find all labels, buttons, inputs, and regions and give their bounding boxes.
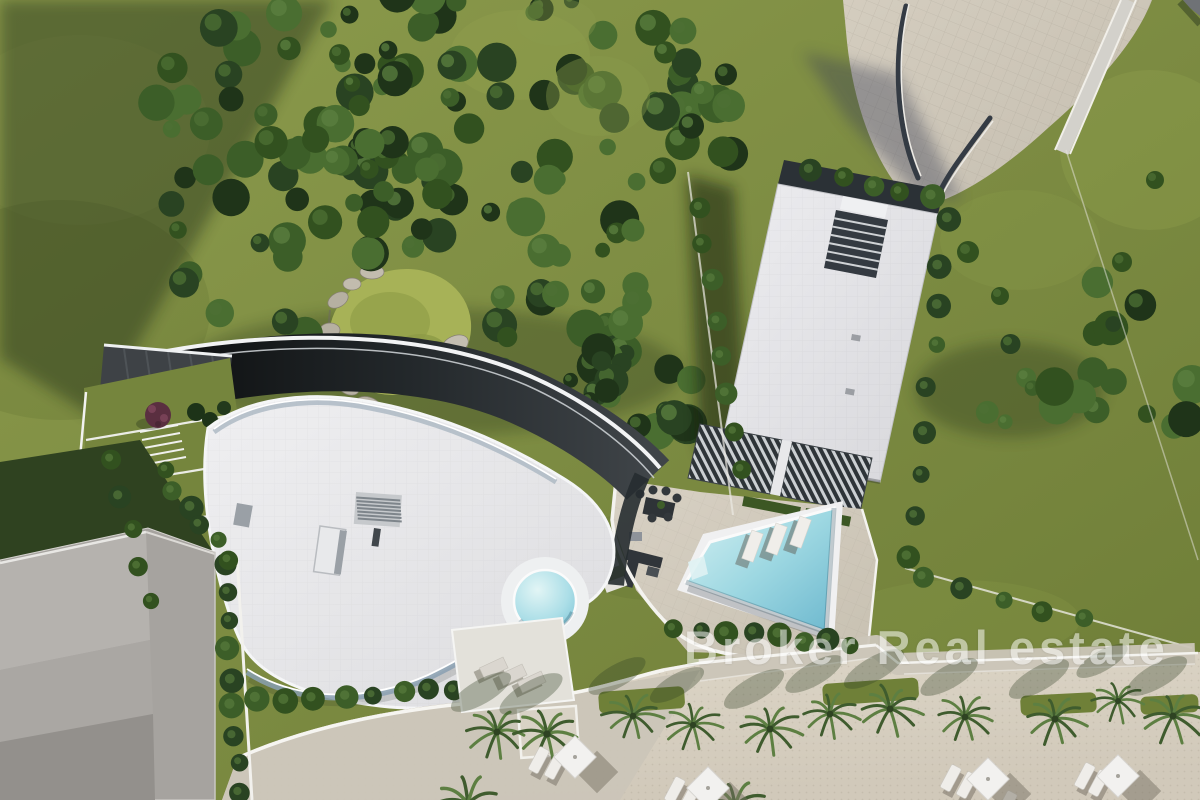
tree-highlight [979,404,989,414]
tree [991,287,1009,305]
tree-highlight [362,162,371,171]
tree-highlight [960,244,970,254]
tree [320,21,337,38]
hedge-highlight [234,757,241,764]
tree [345,194,363,212]
tree-highlight [411,137,427,153]
render-canvas [0,0,1200,800]
tree [159,191,185,217]
hedge-highlight [340,690,349,699]
hedge-highlight [224,699,234,709]
hedge-highlight [838,171,846,179]
hedge-highlight [720,387,729,396]
hedge-highlight [113,490,122,499]
hedge-highlight [696,625,702,631]
tree-highlight [686,106,692,112]
tree [511,161,533,183]
hedge-highlight [999,595,1006,602]
tree-highlight [381,43,389,51]
tree-highlight [1115,255,1124,264]
tree-highlight [1177,370,1194,387]
hedge-highlight [955,582,964,591]
tree [411,218,433,240]
hedge-highlight [728,426,736,434]
hedge-highlight [128,523,135,530]
tree-highlight [682,117,693,128]
tree-highlight [257,106,267,116]
tree-highlight [584,282,595,293]
hedge-highlight [367,690,374,697]
tree [373,181,394,202]
tree [302,126,329,153]
tree-highlight [532,238,547,253]
tree-highlight [346,78,353,85]
tree-highlight [494,288,505,299]
hedge-highlight [223,554,231,562]
tree-highlight [273,227,290,244]
tree-highlight [694,84,704,94]
hedge-highlight [398,685,406,693]
tree [534,165,564,195]
hedge-highlight [773,628,783,638]
tree-highlight [161,57,175,71]
tree [708,136,739,167]
tree-highlight [661,405,677,421]
tree [454,113,484,143]
hedge-highlight [926,190,936,200]
tree [172,85,202,115]
tree-highlight [321,110,338,127]
tree-highlight [718,66,728,76]
hedge-highlight [227,730,235,738]
tree-highlight [405,238,415,248]
hedge-highlight [932,299,942,309]
tree [621,219,644,242]
tree-highlight [165,122,173,130]
tree [354,53,375,74]
hedge-highlight [712,316,720,324]
tree-highlight [1129,293,1143,307]
tree [174,167,196,189]
hedge-highlight [422,683,430,691]
tree-highlight [259,130,274,145]
hedge-highlight [668,623,675,630]
tree [193,154,224,185]
hedge-highlight [706,273,715,282]
tree-highlight [1019,370,1028,379]
tree-highlight [343,8,351,16]
tree-highlight [565,375,572,382]
hedge-highlight [821,633,830,642]
tree [415,158,439,182]
tree-highlight [657,44,667,54]
tree-highlight [1027,382,1034,389]
hedge-highlight [894,186,902,194]
hedge-highlight [845,640,852,647]
tree-highlight [1000,416,1007,423]
tree [349,95,370,116]
tree-highlight [673,21,685,33]
tree [1035,367,1074,406]
tree-highlight [441,54,454,67]
hedge-highlight [233,787,241,795]
tree-highlight [218,64,230,76]
hedge-highlight [719,626,729,636]
hedge-highlight [224,615,231,622]
tree [477,43,516,82]
tree-highlight [332,47,341,56]
tree-highlight [717,94,732,109]
hedge-highlight [1036,606,1044,614]
tree [1146,171,1164,189]
tree-highlight [609,225,618,234]
hedge-highlight [868,180,876,188]
tree [592,351,612,371]
tree [219,87,244,112]
tree [138,85,174,121]
hedge-highlight [250,692,260,702]
tree-highlight [530,283,543,296]
tree [422,179,452,209]
hedge-highlight [942,213,952,223]
tree-highlight [630,417,641,428]
tree [357,206,389,238]
hedge-highlight [161,465,168,472]
hedge-highlight [146,596,152,602]
hedge-highlight [448,684,456,692]
hedge-highlight [166,485,174,493]
tree-highlight [484,205,492,213]
tree-highlight [1003,337,1012,346]
hedge-highlight [916,469,923,476]
tree [1100,368,1127,395]
hedge-highlight [918,426,927,435]
hedge-highlight [715,350,723,358]
hedge-highlight [909,510,917,518]
hedge-highlight [798,636,806,644]
tree [595,378,620,403]
tree-highlight [194,112,209,127]
tree [1105,316,1121,332]
tree-highlight [640,14,656,30]
hedge-highlight [804,164,813,173]
hedge-highlight [225,674,235,684]
tree-highlight [626,291,639,304]
tree-highlight [613,310,629,326]
tree-highlight [443,90,451,98]
tree-highlight [275,312,287,324]
tree [352,237,385,270]
hedge-highlight [694,202,702,210]
tree [285,188,309,212]
hedge-highlight [132,561,140,569]
tree-highlight [271,0,287,16]
hedge-highlight [932,260,942,270]
tree [628,173,646,191]
tree-highlight [382,66,398,82]
tree-highlight [490,86,503,99]
hedge-highlight [306,692,315,701]
hedge-highlight [213,535,219,541]
tree [497,327,517,347]
roof-stairs [354,492,402,527]
hedge-highlight [220,641,230,651]
tree-highlight [312,210,327,225]
hedge-highlight [736,464,743,471]
tree [595,243,610,258]
hedge-highlight [748,626,756,634]
tree-highlight [486,312,502,328]
hedge-highlight [278,694,288,704]
tree [599,139,616,156]
tree-highlight [280,40,291,51]
tree [408,13,437,42]
tree [212,179,249,216]
tree-highlight [1148,173,1156,181]
tree [506,197,545,236]
hedge-highlight [193,519,201,527]
hedge-highlight [932,339,939,346]
hedge-highlight [696,238,704,246]
hedge-highlight [920,381,928,389]
aerial-render: Broker Real estate [0,0,1200,800]
hedge-highlight [917,571,925,579]
tree [355,129,385,159]
tree-highlight [209,302,222,315]
tree-highlight [993,289,1001,297]
hedge-highlight [185,501,195,511]
hedge-highlight [902,550,911,559]
tree-highlight [326,151,338,163]
hedge-highlight [1079,613,1086,620]
hedge-highlight [222,587,229,594]
tree-highlight [653,161,665,173]
hedge-highlight [105,454,113,462]
tree-highlight [173,271,187,285]
tree-highlight [205,14,222,31]
tree-highlight [546,284,558,296]
tree-highlight [171,223,179,231]
tree-highlight [253,236,261,244]
